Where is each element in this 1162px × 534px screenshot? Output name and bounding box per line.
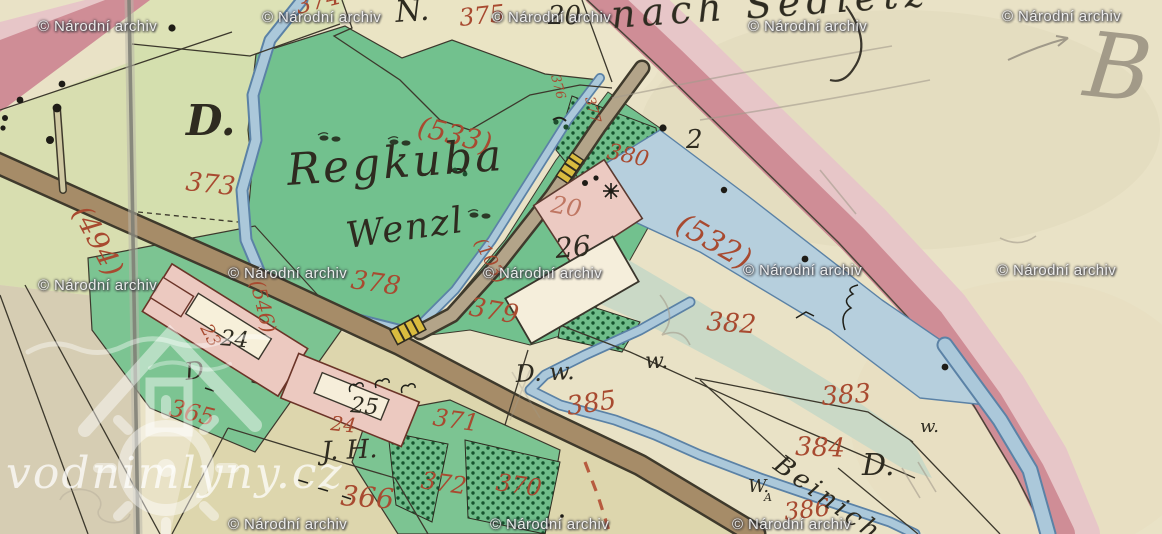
- house-25: 25: [348, 393, 379, 420]
- archive-watermark: © Národní archiv: [38, 277, 157, 294]
- mill-wheel-symbol: [603, 183, 619, 199]
- archive-watermark: © Národní archiv: [38, 18, 157, 35]
- parcel-382: 382: [706, 307, 758, 340]
- archive-watermark: © Národní archiv: [490, 516, 609, 533]
- archive-watermark: © Národní archiv: [228, 516, 347, 533]
- letter-w2: w.: [920, 416, 939, 437]
- letter-d-large: D.: [185, 96, 236, 145]
- archive-watermark: © Národní archiv: [732, 516, 851, 533]
- letter-w1: w.: [645, 349, 668, 374]
- marker-2: 2: [685, 125, 703, 155]
- house-26: 26: [553, 229, 592, 265]
- archive-watermark: © Národní archiv: [748, 18, 867, 35]
- historical-map-scan: 374 375 376 377 380 373 378 379 382 383 …: [0, 0, 1162, 534]
- letter-d-small: D.: [861, 448, 895, 483]
- archive-watermark: © Národní archiv: [262, 9, 381, 26]
- vodnimlyny-text-watermark: vodnimlyny.cz: [6, 448, 344, 499]
- parcel-383: 383: [820, 379, 872, 412]
- old-number-20: 20: [548, 190, 584, 223]
- parcel-384: 384: [795, 432, 846, 464]
- parcel-373: 373: [184, 167, 237, 202]
- archive-watermark: © Národní archiv: [997, 262, 1116, 279]
- archive-watermark: © Národní archiv: [743, 262, 862, 279]
- parcel-366: 366: [340, 479, 396, 516]
- archive-watermark: © Národní archiv: [483, 265, 602, 282]
- letter-dw: D. w.: [514, 357, 575, 388]
- archive-watermark: © Národní archiv: [1002, 8, 1121, 25]
- sheet-letter-n: N.: [393, 0, 430, 30]
- letter-w3-sub: A: [763, 491, 772, 504]
- pencil-letter-b: B: [1078, 12, 1157, 124]
- archive-watermark: © Národní archiv: [492, 9, 611, 26]
- archive-watermark: © Národní archiv: [228, 265, 347, 282]
